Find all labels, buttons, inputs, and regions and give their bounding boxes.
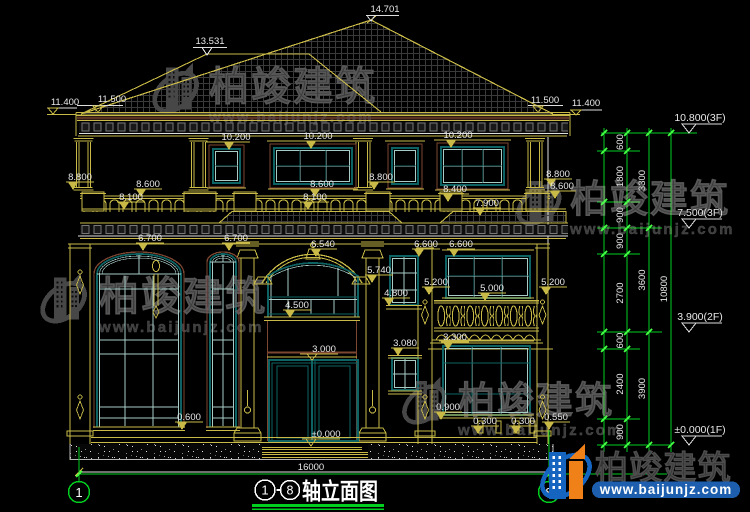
svg-text:www.baijunjz.com: www.baijunjz.com	[98, 319, 264, 336]
svg-text:14.701: 14.701	[370, 4, 399, 15]
svg-text:0.600: 0.600	[177, 412, 201, 423]
svg-text:6.700: 6.700	[138, 233, 162, 244]
svg-text:13.531: 13.531	[195, 36, 224, 47]
svg-text:轴立面图: 轴立面图	[302, 478, 378, 504]
svg-text:11.500: 11.500	[98, 94, 126, 105]
svg-text:柏竣建筑: 柏竣建筑	[570, 179, 730, 221]
svg-text:11.400: 11.400	[51, 97, 79, 108]
svg-text:柏竣建筑: 柏竣建筑	[458, 379, 614, 421]
svg-text:8.800: 8.800	[546, 169, 570, 180]
svg-text:3.000: 3.000	[312, 344, 336, 355]
svg-text:5.740: 5.740	[367, 265, 391, 276]
svg-text:10.200: 10.200	[443, 130, 472, 141]
svg-text:11.500: 11.500	[531, 95, 559, 106]
svg-text:4.800: 4.800	[384, 288, 408, 299]
svg-text:柏竣建筑: 柏竣建筑	[99, 275, 267, 319]
svg-text:8.600: 8.600	[136, 179, 160, 190]
svg-text:6.700: 6.700	[224, 233, 248, 244]
svg-text:10.200: 10.200	[221, 132, 250, 143]
svg-text:±0.000(1F): ±0.000(1F)	[674, 424, 725, 436]
svg-text:10.200: 10.200	[303, 131, 332, 142]
svg-text:11.400: 11.400	[572, 98, 600, 109]
svg-text:6.600: 6.600	[449, 239, 473, 250]
svg-text:3900: 3900	[637, 378, 648, 399]
svg-text:3600: 3600	[637, 269, 648, 290]
svg-text:www.baijunjz.com: www.baijunjz.com	[457, 422, 623, 439]
svg-text:柏竣建筑: 柏竣建筑	[595, 449, 732, 486]
svg-text:16000: 16000	[298, 462, 324, 473]
svg-text:8.800: 8.800	[68, 172, 92, 183]
svg-text:1: 1	[261, 483, 268, 498]
svg-text:3.900(2F): 3.900(2F)	[677, 311, 723, 323]
svg-text:3.300: 3.300	[443, 332, 467, 343]
svg-text:5.000: 5.000	[480, 283, 504, 294]
svg-text:8.800: 8.800	[369, 172, 393, 183]
svg-text:1: 1	[75, 485, 82, 500]
svg-text:6.540: 6.540	[311, 239, 335, 250]
svg-text:600: 600	[615, 134, 626, 150]
svg-text:5.200: 5.200	[541, 277, 565, 288]
svg-text:8.600: 8.600	[310, 179, 334, 190]
svg-text:6.600: 6.600	[414, 239, 438, 250]
svg-text:8.400: 8.400	[443, 184, 467, 195]
svg-text:7.900: 7.900	[475, 198, 499, 209]
svg-text:8: 8	[287, 484, 294, 498]
svg-text:8.100: 8.100	[303, 192, 327, 203]
svg-text:3.080: 3.080	[393, 338, 417, 349]
svg-text:柏竣建筑: 柏竣建筑	[209, 65, 377, 109]
svg-text:2700: 2700	[615, 282, 626, 303]
svg-text:8.100: 8.100	[119, 192, 143, 203]
svg-text:www.baijunjz.com: www.baijunjz.com	[208, 109, 374, 126]
svg-text:600: 600	[615, 333, 626, 349]
svg-text:5.200: 5.200	[424, 277, 448, 288]
svg-text:www.baijunjz.com: www.baijunjz.com	[599, 482, 733, 497]
svg-text:2400: 2400	[615, 373, 626, 394]
svg-text:10800: 10800	[659, 276, 670, 302]
svg-text:www.baijunjz.com: www.baijunjz.com	[569, 221, 735, 238]
svg-text:10.800(3F): 10.800(3F)	[674, 112, 725, 124]
svg-text:4.500: 4.500	[285, 300, 309, 311]
svg-text:±0.000: ±0.000	[312, 429, 341, 440]
